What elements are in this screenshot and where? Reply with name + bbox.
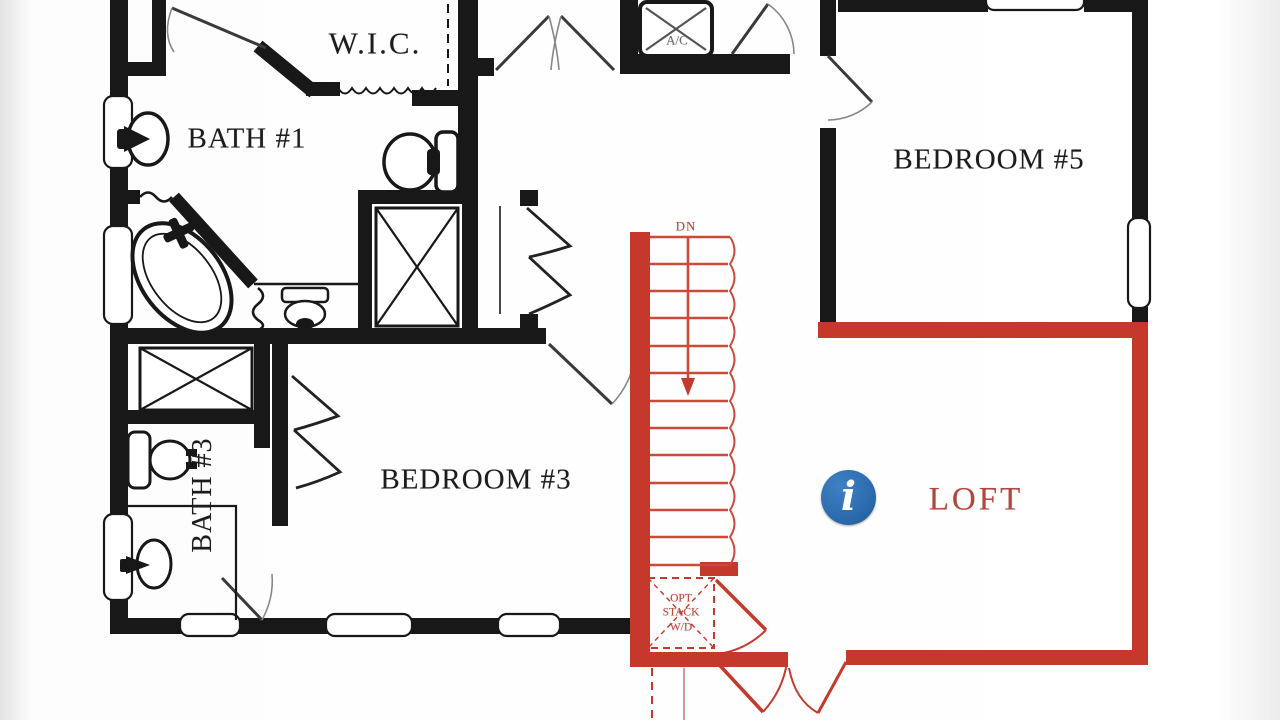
linen-closet — [500, 206, 570, 314]
bath1-shower — [376, 208, 458, 326]
water-closet — [254, 284, 360, 330]
wd-label-line2: STACK — [663, 606, 700, 620]
stair-direction-arrow — [681, 378, 695, 396]
bath3-shower — [140, 348, 252, 410]
room-label-bath1: BATH #1 — [188, 125, 307, 154]
wd-label-line3: W/D — [663, 620, 700, 634]
wd-label-line1: OPT — [663, 591, 700, 605]
info-icon[interactable]: i — [821, 470, 876, 525]
room-label-loft: LOFT — [929, 484, 1024, 517]
stairs-dn-label: DN — [676, 220, 697, 233]
staircase — [650, 237, 735, 565]
door-swings — [167, 4, 872, 620]
floor-plan: W.I.C. BATH #1 A/C BEDROOM #5 BEDROOM #3… — [0, 0, 1280, 720]
room-label-wic: W.I.C. — [329, 28, 422, 59]
exterior-walls — [110, 0, 1148, 634]
wd-closet-label: OPT STACK W/D — [663, 591, 700, 634]
room-label-bath3: BATH #3 — [189, 437, 217, 552]
ac-closet — [640, 2, 712, 56]
room-label-bedroom3: BEDROOM #3 — [380, 466, 571, 495]
bath3-vanity — [120, 506, 236, 620]
room-label-ac: A/C — [666, 34, 688, 47]
room-label-bedroom5: BEDROOM #5 — [893, 146, 1084, 175]
bedroom3-closet-doors — [292, 376, 340, 488]
loft-red-walls — [630, 232, 1148, 667]
floor-plan-drawing — [0, 0, 1280, 720]
bath1-toilet — [384, 132, 458, 192]
info-icon-glyph: i — [841, 477, 856, 517]
windows — [104, 0, 1150, 636]
wic-chamfer-wall — [258, 46, 314, 92]
